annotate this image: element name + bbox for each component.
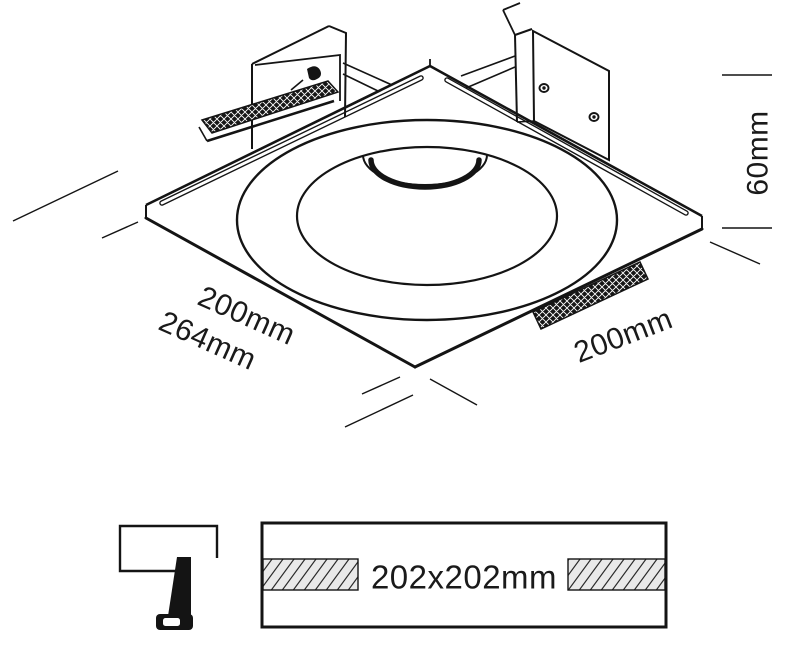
cutout-size-label: 202x202mm [371,559,557,596]
screw-hole-center [592,115,595,118]
ceiling-cutout-diagram: 202x202mm [262,523,666,627]
witness-line [710,242,760,264]
witness-line [345,395,413,427]
rim-line [466,67,515,88]
recessed-luminaire-technical-drawing: 200mm 264mm 200mm 60mm 202x202mm [0,0,800,668]
section-spring-clip [168,557,191,616]
spring-hook [307,66,321,80]
spring-strip-cap [199,127,207,141]
witness-line [430,379,477,405]
rim-line [343,63,392,85]
rear-rim-lines [343,56,515,91]
screw-hole-center [542,86,545,89]
dimension-label-side-depth: 200mm [570,302,678,370]
witness-line [102,222,138,238]
witness-line [362,377,400,394]
inner-trim-ring [297,147,557,285]
spring-hook-tail [291,80,303,90]
bracket-thickness-top [515,29,532,35]
outer-trim-ring [237,120,617,320]
plaster-hatch-right [568,559,665,590]
lamp-recess [363,155,487,187]
lamp-shadow-arc [371,160,479,187]
witness-line [13,171,118,221]
section-clip-foot-slot [163,618,180,626]
bracket-thickness-bottom [517,121,534,122]
bracket-back-top [503,3,520,10]
bracket-back-edge [503,10,515,35]
trim-ring [237,120,617,320]
rim-line [461,56,515,76]
bracket-panel-thickness [329,26,346,117]
section-profile-detail [120,526,217,630]
dimension-label-height: 60mm [742,110,775,195]
lamp-opening-arc [363,155,487,185]
left-spring-bracket [199,26,346,149]
bracket-thickness-left [515,35,517,122]
plate-lower-right-edge [415,229,702,367]
plaster-hatch-left [263,559,358,590]
section-frame-profile [120,526,217,571]
dimension-annotations: 200mm 264mm 200mm 60mm [13,75,775,427]
plate-upper-left-edge [146,66,430,205]
technical-drawing-page: 200mm 264mm 200mm 60mm 202x202mm [0,0,800,668]
